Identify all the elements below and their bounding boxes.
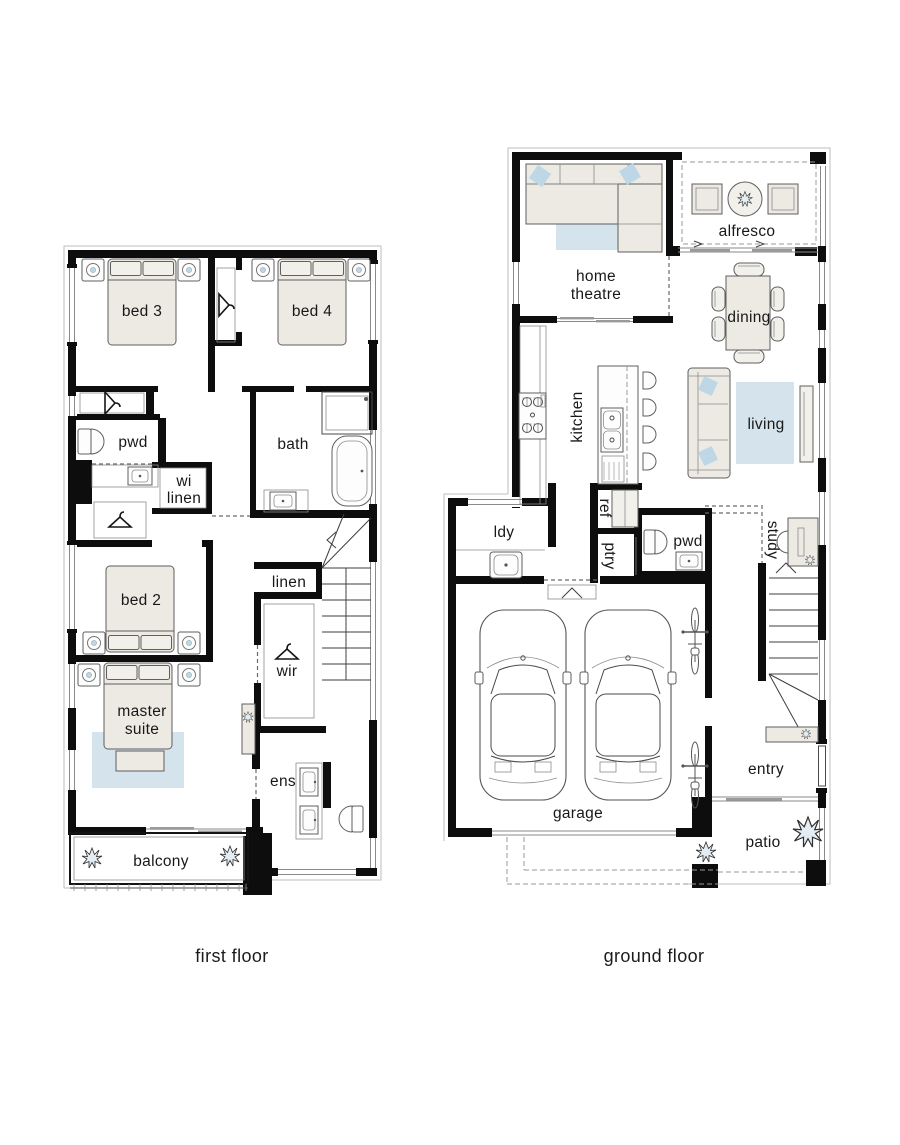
island-bench bbox=[598, 366, 656, 484]
study-nook: study bbox=[764, 518, 818, 566]
stool-icon bbox=[643, 426, 656, 443]
balcony-sliding-door bbox=[146, 826, 246, 836]
stool-icon bbox=[643, 399, 656, 416]
bed4-room: bed 4 bbox=[252, 259, 370, 345]
bathtub-icon bbox=[332, 436, 372, 506]
lamp-icon bbox=[78, 664, 100, 686]
room-label-home-theatre-2: theatre bbox=[571, 286, 621, 303]
ground-floor-plan: home theatre alfresco dining living bbox=[444, 148, 830, 888]
room-label-ref: ref bbox=[596, 499, 613, 518]
linen-room-first: linen bbox=[272, 574, 306, 591]
room-label-study: study bbox=[764, 521, 781, 560]
room-label-bath: bath bbox=[277, 436, 308, 453]
lamp-icon bbox=[178, 632, 200, 654]
stool-icon bbox=[643, 453, 656, 470]
bed3-room: bed 3 bbox=[82, 259, 200, 345]
room-label-master-2: suite bbox=[125, 721, 159, 738]
room-label-living: living bbox=[747, 416, 784, 433]
sink-icon bbox=[601, 408, 623, 452]
outdoor-chair bbox=[692, 184, 722, 214]
room-label-entry: entry bbox=[748, 761, 784, 778]
robe-closet bbox=[217, 268, 235, 342]
toilet-icon bbox=[78, 429, 104, 454]
sink-icon bbox=[128, 467, 152, 485]
sink-icon bbox=[490, 552, 522, 578]
dining-chair bbox=[771, 317, 784, 341]
room-label-bed4: bed 4 bbox=[292, 303, 332, 320]
first-floor-plan: bed 3 bed 4 pwd wi linen b bbox=[64, 246, 381, 895]
ref-closet: ref bbox=[596, 490, 638, 527]
stairs-ground-floor bbox=[766, 563, 818, 742]
room-label-ens: ens bbox=[270, 773, 296, 790]
bed-icon bbox=[278, 259, 346, 345]
plant-icon bbox=[220, 846, 240, 866]
room-label-pwd-ground: pwd bbox=[673, 533, 702, 550]
bed2-room: bed 2 bbox=[83, 566, 200, 654]
room-label-pwd-first: pwd bbox=[118, 434, 147, 451]
hanger-icon bbox=[276, 644, 298, 659]
hanger-icon bbox=[109, 512, 131, 527]
bed-icon bbox=[106, 566, 174, 652]
wir-room: wir bbox=[264, 604, 314, 718]
ottoman bbox=[116, 751, 164, 771]
robe-strip-1 bbox=[80, 392, 144, 414]
room-label-wir: wir bbox=[276, 663, 298, 680]
room-label-ptry: ptry bbox=[601, 542, 618, 569]
living-area: living bbox=[688, 368, 813, 478]
room-label-linen: linen bbox=[272, 574, 306, 591]
first-floor-caption: first floor bbox=[195, 946, 268, 966]
sink-icon bbox=[270, 492, 296, 510]
room-label-ldy: ldy bbox=[494, 524, 515, 541]
bike-icon bbox=[681, 608, 708, 674]
dining-chair bbox=[734, 350, 764, 363]
room-label-patio: patio bbox=[745, 834, 780, 851]
hall-shelf bbox=[242, 704, 255, 754]
home-theatre-room: home theatre bbox=[526, 163, 662, 303]
plant-icon bbox=[82, 848, 102, 868]
robe-strip-2 bbox=[94, 502, 146, 538]
pwd-room-ground: pwd bbox=[644, 530, 703, 570]
lamp-icon bbox=[178, 259, 200, 281]
stool-icon bbox=[643, 372, 656, 389]
sink-icon bbox=[300, 806, 318, 834]
room-label-home-theatre-1: home bbox=[576, 268, 616, 285]
lamp-icon bbox=[82, 259, 104, 281]
outdoor-chair bbox=[768, 184, 798, 214]
room-label-balcony: balcony bbox=[133, 853, 189, 870]
driveway-line bbox=[507, 837, 718, 884]
front-door bbox=[816, 739, 828, 793]
stair-shelf bbox=[766, 727, 818, 742]
shower-icon bbox=[322, 392, 372, 434]
tv-unit bbox=[800, 386, 813, 462]
room-label-bed3: bed 3 bbox=[122, 303, 162, 320]
plant-icon bbox=[696, 842, 716, 862]
room-label-alfresco: alfresco bbox=[719, 223, 776, 240]
entry-patio-door bbox=[712, 797, 818, 801]
lamp-icon bbox=[348, 259, 370, 281]
theatre-cavity-door bbox=[557, 316, 633, 323]
sink-icon bbox=[676, 552, 702, 570]
dining-chair bbox=[712, 287, 725, 311]
desk bbox=[788, 518, 818, 566]
ens-room: ens bbox=[270, 763, 363, 839]
dining-chair bbox=[712, 317, 725, 341]
dining-chair bbox=[734, 263, 764, 276]
ground-floor-caption: ground floor bbox=[604, 946, 705, 966]
floor-plan-drawing: bed 3 bed 4 pwd wi linen b bbox=[0, 0, 900, 1145]
dining-chair bbox=[771, 287, 784, 311]
room-label-kitchen: kitchen bbox=[569, 391, 586, 442]
lamp-icon bbox=[178, 664, 200, 686]
garage-door bbox=[492, 828, 676, 837]
sink-icon bbox=[300, 768, 318, 796]
toilet-icon bbox=[644, 530, 667, 554]
sofa-icon bbox=[688, 368, 730, 478]
room-label-master-1: master bbox=[117, 703, 166, 720]
lamp-icon bbox=[252, 259, 274, 281]
toilet-icon bbox=[339, 806, 363, 832]
hanger-icon bbox=[105, 392, 120, 414]
cooktop-icon bbox=[519, 393, 546, 439]
dining-area: dining bbox=[712, 263, 784, 363]
car-icon bbox=[580, 610, 676, 800]
ldy-room: ldy bbox=[456, 524, 545, 578]
room-label-garage: garage bbox=[553, 805, 603, 822]
bed-icon bbox=[108, 259, 176, 345]
wi-linen-room: wi linen bbox=[160, 468, 206, 508]
room-label-wi-linen-1: wi bbox=[175, 473, 191, 490]
garage-room: garage bbox=[475, 585, 709, 822]
car-icon bbox=[475, 610, 571, 800]
lamp-icon bbox=[83, 632, 105, 654]
alfresco-area: alfresco bbox=[692, 182, 798, 240]
room-label-wi-linen-2: linen bbox=[167, 490, 201, 507]
kitchen-area: kitchen bbox=[519, 326, 656, 504]
room-label-dining: dining bbox=[727, 309, 770, 326]
stairs-first-floor bbox=[322, 514, 371, 680]
patio-area: patio bbox=[696, 817, 823, 862]
floor-plan-page: bed 3 bed 4 pwd wi linen b bbox=[0, 0, 900, 1145]
master-suite-room: master suite bbox=[78, 663, 200, 788]
balcony: balcony bbox=[70, 833, 248, 891]
room-label-bed2: bed 2 bbox=[121, 592, 161, 609]
entry-area: entry bbox=[748, 761, 784, 778]
hanger-icon bbox=[219, 294, 234, 316]
bath-room: bath bbox=[264, 392, 372, 512]
ptry-closet: ptry bbox=[601, 537, 636, 575]
